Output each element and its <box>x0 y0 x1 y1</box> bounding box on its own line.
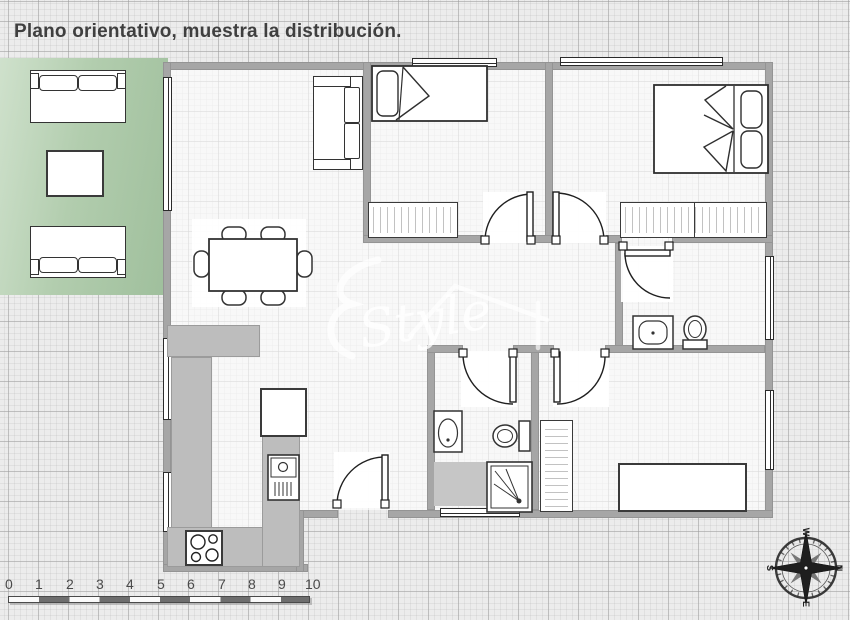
sofa-cushion <box>39 75 78 91</box>
scale-label: 1 <box>35 576 43 592</box>
coffee-table <box>46 150 104 197</box>
compass-e-label: E <box>801 601 811 607</box>
wardrobe-bedroom2 <box>620 202 767 238</box>
scale-label: 6 <box>187 576 195 592</box>
wall-bathroom1-left <box>615 243 623 352</box>
wardrobe-bedroom3 <box>540 420 573 512</box>
sofa-armrest <box>313 76 351 87</box>
sofa-armrest <box>117 259 126 275</box>
sofa-cushion <box>344 123 360 159</box>
window-bedroom2-top <box>560 57 723 66</box>
scale-label: 7 <box>218 576 226 592</box>
bathroom2-floor-patch <box>434 462 487 506</box>
scale-label: 2 <box>66 576 74 592</box>
compass-s-label: S <box>765 565 775 571</box>
window-bathroom1-right <box>765 256 774 340</box>
kitchen-counter-top <box>167 325 260 357</box>
living-sofa <box>313 76 363 170</box>
sofa-armrest <box>30 73 39 89</box>
scale-label: 9 <box>278 576 286 592</box>
kitchen-table <box>260 388 307 437</box>
scale-label: 8 <box>248 576 256 592</box>
wall-bathroom2-bedroom3-divider <box>531 352 539 510</box>
window-living-left <box>163 77 172 211</box>
window-bedroom3-right <box>765 390 774 470</box>
sofa-cushion <box>344 87 360 123</box>
sofa-armrest <box>30 259 39 275</box>
scale-bar <box>8 596 310 603</box>
bedroom3-bed <box>618 463 747 512</box>
stove <box>185 530 223 566</box>
sofa-armrest <box>313 159 351 170</box>
terrace-sofa-bottom <box>30 226 126 278</box>
terrace-sofa-top <box>30 70 126 123</box>
sofa-armrest <box>117 73 126 89</box>
compass-rose: N E S W <box>765 528 844 607</box>
scale-label: 0 <box>5 576 13 592</box>
compass-n-label: N <box>834 565 844 572</box>
main-floor <box>171 70 765 510</box>
page-title: Plano orientativo, muestra la distribuci… <box>14 21 402 43</box>
wall-hall-bottom-c <box>605 345 765 353</box>
floor-plan-canvas: Plano orientativo, muestra la distribuci… <box>0 0 850 620</box>
scale-label: 10 <box>305 576 321 592</box>
scale-label: 3 <box>96 576 104 592</box>
scale-label: 4 <box>126 576 134 592</box>
window-bathroom2-bottom <box>440 508 520 517</box>
scale-label: 5 <box>157 576 165 592</box>
wall-bedroom1-bedroom2-divider <box>545 62 553 243</box>
sofa-cushion <box>39 257 78 273</box>
sofa-cushion <box>78 75 117 91</box>
window-bedroom1-top <box>412 58 497 67</box>
wall-hall-top-b <box>532 235 557 243</box>
kitchen-counter-left <box>171 357 212 529</box>
compass-w-label: W <box>801 528 811 537</box>
sofa-cushion <box>78 257 117 273</box>
wardrobe-bedroom1 <box>368 202 458 238</box>
